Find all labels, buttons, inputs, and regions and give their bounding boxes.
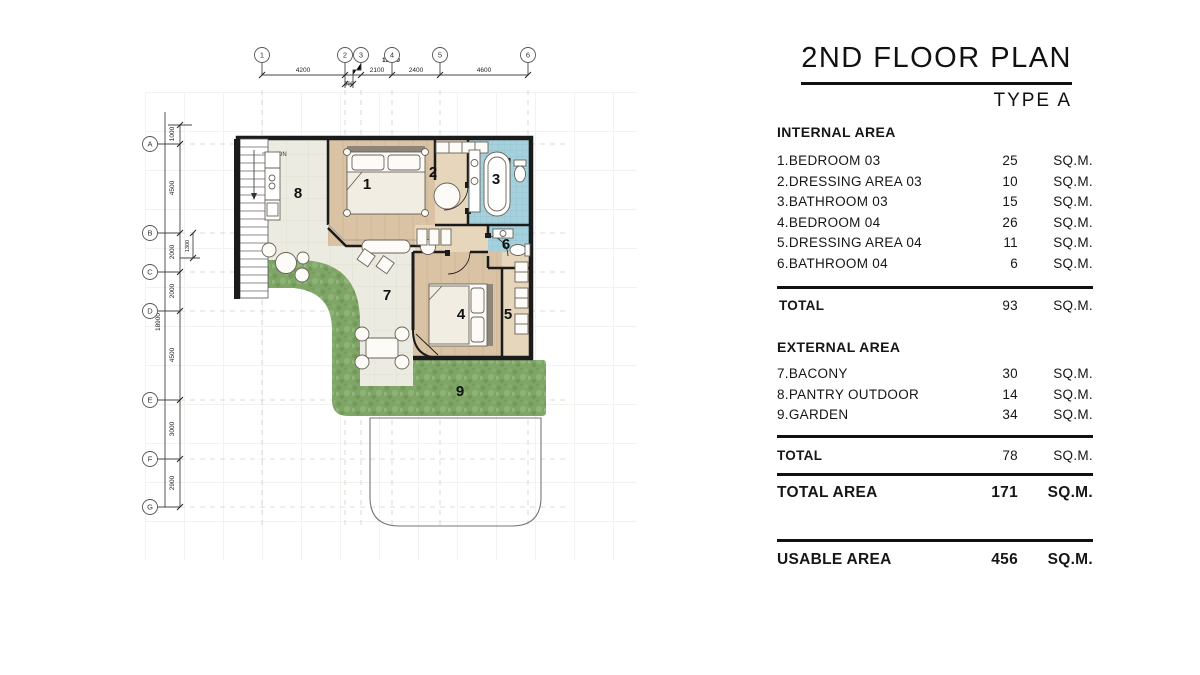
grid-bubble-label: 6 [526,51,530,60]
external-area-heading: EXTERNAL AREA [777,339,900,355]
row-unit: SQ.M. [1018,385,1093,406]
total-area-label: TOTAL AREA [777,483,958,504]
internal-area-heading: INTERNAL AREA [777,124,896,140]
total-area-unit: SQ.M. [1018,483,1093,504]
grid-bubbles-top: 1 2 3 4 5 6 [255,48,536,63]
grid-bubble-label: E [147,396,152,405]
usable-area-label: USABLE AREA [777,550,958,571]
room-label-bathroom-04: 6 [502,236,510,253]
table-row: 3.BATHROOM 03 15 SQ.M. [777,192,1093,213]
dim-label: 2900 [169,475,176,490]
internal-area-rows: 1.BEDROOM 03 25 SQ.M. 2.DRESSING AREA 03… [777,151,1093,275]
dim-label: 2000 [169,244,176,259]
grid-bubble-label: F [148,455,153,464]
table-row: 5.DRESSING AREA 04 11 SQ.M. [777,233,1093,254]
table-row: 1.BEDROOM 03 25 SQ.M. [777,151,1093,172]
grid-bubble-label: C [147,268,153,277]
divider-line [777,539,1093,542]
divider-line [777,286,1093,289]
area-summary-panel: 2ND FLOOR PLAN TYPE A INTERNAL AREA 1.BE… [777,0,1093,675]
grid-bubble-label: D [147,307,153,316]
table-row: 2.DRESSING AREA 03 10 SQ.M. [777,172,1093,193]
grid-bubble-label: 3 [359,51,363,60]
dim-label: 4500 [169,180,176,195]
total-label: TOTAL [779,296,958,317]
row-value: 11 [958,233,1018,254]
row-value: 15 [958,192,1018,213]
room-label-bathroom-03: 3 [492,171,500,188]
row-label: 4.BEDROOM 04 [777,213,958,234]
top-dimensions: 4200 300 2100 2400 4600 13600 1 2 3 4 5 … [255,48,536,89]
row-value: 30 [958,364,1018,385]
lower-floor-outline [370,418,541,526]
total-label: TOTAL [777,446,958,467]
table-row: 4.BEDROOM 04 26 SQ.M. [777,213,1093,234]
row-label: 9.GARDEN [777,405,958,426]
grid-bubble-label: 2 [343,51,347,60]
row-unit: SQ.M. [1018,233,1093,254]
dim-label: 2400 [409,67,424,74]
grid-bubble-label: A [147,140,152,149]
total-area-value: 171 [958,483,1018,504]
dim-sub-label: 1300 [185,240,191,252]
row-value: 25 [958,151,1018,172]
room-label-bedroom-03: 1 [363,176,371,193]
row-label: 8.PANTRY OUTDOOR [777,385,958,406]
page-title: 2ND FLOOR PLAN [801,42,1072,85]
total-value: 93 [958,296,1018,317]
row-value: 6 [958,254,1018,275]
divider-line [777,435,1093,438]
usable-area-row: USABLE AREA 456 SQ.M. [777,550,1093,571]
external-area-rows: 7.BACONY 30 SQ.M. 8.PANTRY OUTDOOR 14 SQ… [777,364,1093,426]
grid-bubble-label: 5 [438,51,442,60]
row-unit: SQ.M. [1018,172,1093,193]
dim-label: 300 [344,82,353,88]
room-label-bedroom-04: 4 [457,306,466,323]
row-label: 7.BACONY [777,364,958,385]
grid-bubble-label: 4 [390,51,394,60]
divider-line [777,473,1093,476]
table-row: 9.GARDEN 34 SQ.M. [777,405,1093,426]
room-label-dressing-area-04: 5 [504,306,512,323]
external-total-row: TOTAL 78 SQ.M. [777,446,1093,467]
row-unit: SQ.M. [1018,254,1093,275]
table-row: 7.BACONY 30 SQ.M. [777,364,1093,385]
room-label-balcony: 7 [383,287,391,304]
row-value: 14 [958,385,1018,406]
dim-label: 4200 [296,67,311,74]
row-label: 2.DRESSING AREA 03 [777,172,958,193]
row-label: 5.DRESSING AREA 04 [777,233,958,254]
dim-label: 1000 [169,126,176,141]
grid-bubble-label: 1 [260,51,264,60]
row-unit: SQ.M. [1018,192,1093,213]
row-label: 6.BATHROOM 04 [777,254,958,275]
usable-area-unit: SQ.M. [1018,550,1093,571]
grid-bubble-label: G [147,503,153,512]
dim-label: 3000 [169,421,176,436]
row-unit: SQ.M. [1018,151,1093,172]
row-label: 1.BEDROOM 03 [777,151,958,172]
dim-label: 2100 [370,67,385,74]
dim-label: 4500 [169,347,176,362]
table-row: 6.BATHROOM 04 6 SQ.M. [777,254,1093,275]
total-value: 78 [958,446,1018,467]
internal-total-row: TOTAL 93 SQ.M. [779,296,1093,317]
total-area-row: TOTAL AREA 171 SQ.M. [777,483,1093,504]
table-row: 8.PANTRY OUTDOOR 14 SQ.M. [777,385,1093,406]
row-label: 3.BATHROOM 03 [777,192,958,213]
grid-bubble-label: B [147,229,152,238]
usable-area-value: 456 [958,550,1018,571]
dim-label: 2000 [169,283,176,298]
row-value: 10 [958,172,1018,193]
plan-type-subtitle: TYPE A [993,90,1072,112]
row-value: 34 [958,405,1018,426]
row-value: 26 [958,213,1018,234]
room-label-dressing-area-03: 2 [429,164,437,181]
row-unit: SQ.M. [1018,364,1093,385]
room-label-garden: 9 [456,383,464,400]
left-dimensions: 1000 4500 2000 2000 4500 3000 2900 18900… [143,112,201,515]
room-label-pantry-outdoor: 8 [294,185,302,202]
total-unit: SQ.M. [1018,446,1093,467]
page: { "header": { "title": "2ND FLOOR PLAN",… [0,0,1200,675]
total-unit: SQ.M. [1018,296,1093,317]
row-unit: SQ.M. [1018,213,1093,234]
row-unit: SQ.M. [1018,405,1093,426]
dim-label: 4600 [477,67,492,74]
